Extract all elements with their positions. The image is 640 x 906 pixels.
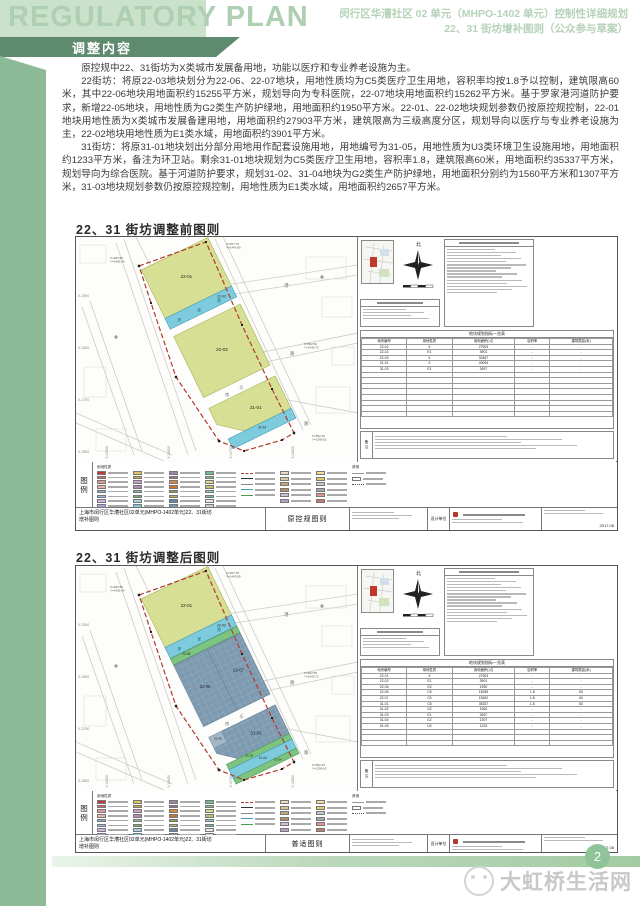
legend-swatch xyxy=(205,476,214,480)
grid-label: X-2800 xyxy=(78,450,89,454)
parcel-label-31-03: 31-03 xyxy=(259,756,267,760)
legend-swatch xyxy=(280,499,289,503)
legend-swatch xyxy=(133,828,142,832)
river-name-char: 罗 xyxy=(177,317,181,322)
coordinate-callout: Y=1445.72 xyxy=(304,346,319,350)
location-inset-map xyxy=(361,240,394,284)
legend-swatch xyxy=(97,471,106,475)
grid-label: Y-14500 xyxy=(105,775,109,788)
road-name-char: 港 xyxy=(284,611,289,618)
legend-swatch xyxy=(97,480,106,484)
legend-swatch xyxy=(133,490,142,494)
after-map-title: 22、31 街坊调整后图则 xyxy=(76,547,220,566)
legend-label: 图例 xyxy=(76,791,93,834)
river-name-char: 港 xyxy=(217,626,221,632)
legend-swatch xyxy=(169,504,178,508)
legend-swatch xyxy=(316,806,325,810)
legend-swatch xyxy=(97,828,106,832)
river-name-char: 罗 xyxy=(177,646,181,651)
legend-swatch xyxy=(316,817,325,821)
legend-swatch xyxy=(97,504,106,508)
watermark-logo-icon xyxy=(464,866,494,896)
legend-column xyxy=(316,794,347,832)
design-unit-label: 设计单位 xyxy=(428,835,450,852)
coordinate-callout: Y=1462.64 xyxy=(110,260,125,264)
grid-label: Y-14600 xyxy=(167,446,171,459)
titlebar-sheet-name: 普适图则 xyxy=(266,835,350,852)
legend-swatch xyxy=(133,485,142,489)
inset-highlight-parcel xyxy=(370,257,377,267)
legend-swatch xyxy=(280,477,289,481)
legend-swatch xyxy=(205,828,214,832)
titlebar-notes xyxy=(350,835,428,852)
road-name-char: 路 xyxy=(290,350,295,357)
legend-swatch xyxy=(280,828,289,832)
paragraph-intro: 原控规中22、31街坊为X类城市发展备用地，功能以医疗和专业养老设施为主。 xyxy=(62,62,619,75)
grid-label: Y-14500 xyxy=(105,446,109,459)
map-info-panel: 北 地块规划指标一览表 地块编号用地性质用地面积(㎡)容积率建筑限高(米) 22… xyxy=(357,237,616,462)
legend-swatch xyxy=(169,495,178,499)
legend-swatch xyxy=(97,476,106,480)
legend-swatch xyxy=(133,499,142,503)
grid-label: X-2600 xyxy=(78,346,89,350)
inset-highlight-parcel xyxy=(370,586,377,596)
parcel-label-31-05: 31-05 xyxy=(214,737,222,741)
location-inset-map xyxy=(361,569,394,613)
grid-label: Y-14600 xyxy=(167,775,171,788)
legend-swatch xyxy=(97,495,106,499)
legend-swatch xyxy=(133,809,142,813)
legend-swatch xyxy=(97,814,106,818)
legend-swatch xyxy=(205,480,214,484)
parcel-label-22-06: 22-06 xyxy=(200,684,211,689)
coordinate-callout: Y=1396.62 xyxy=(312,438,327,442)
plan-heading: 闵行区华漕社区 02 单元（MHPO-1402 单元）控制性详细规划 22、31… xyxy=(339,7,628,37)
plan-map-drawing: 22-0122-0222-0331-0131-03罗家港南乐港路路X=263.5… xyxy=(76,237,357,462)
legend-swatch xyxy=(133,504,142,508)
plan-map-drawing: 22-0122-0222-0522-0622-0731-0131-0531-02… xyxy=(76,566,357,791)
left-accent-bar xyxy=(0,56,46,906)
paragraph-block22: 22街坊：将原22-03地块划分为22-06、22-07地块，用地性质均为C5类… xyxy=(62,75,619,141)
legend-swatch xyxy=(316,499,325,503)
parcel-label-31-04: 31-04 xyxy=(274,757,282,761)
legend-swatch xyxy=(316,800,325,804)
map-legend: 图例 用地性质 其他 xyxy=(76,462,617,508)
parcel-label-22-01: 22-01 xyxy=(181,274,193,279)
legend-swatch xyxy=(205,495,214,499)
map-row: 22-0122-0222-0331-0131-03罗家港南乐港路路X=263.5… xyxy=(76,237,617,462)
map-info-panel: 北 地块规划指标一览表 地块编号用地性质用地面积(㎡)容积率建筑限高(米) 22… xyxy=(357,566,616,791)
legend-swatch xyxy=(97,490,106,494)
legend-swatch xyxy=(97,485,106,489)
figure-title-bar: 上海市闵行区华漕社区02单元(MHPO-1402单元)22、31街坊 增补图则 … xyxy=(76,835,617,852)
map-row: 22-0122-0222-0522-0622-0731-0131-0531-02… xyxy=(76,566,617,791)
legend-swatch xyxy=(316,828,325,832)
titlebar-project: 上海市闵行区华漕社区02单元(MHPO-1402单元)22、31街坊 增补图则 xyxy=(76,508,266,530)
legend-column-lines xyxy=(241,465,275,505)
legend-swatch xyxy=(205,800,214,804)
legend-column xyxy=(133,794,164,832)
river-name-char: 港 xyxy=(217,297,221,303)
legend-swatch xyxy=(316,488,325,492)
legend-swatch xyxy=(316,482,325,486)
legend-swatch xyxy=(169,490,178,494)
legend-label: 图例 xyxy=(76,462,93,507)
road-name-char: 乐 xyxy=(239,713,243,719)
road-name-char: 路 xyxy=(304,749,309,756)
legend-swatch xyxy=(205,814,214,818)
legend-swatch xyxy=(280,822,289,826)
map-before-figure: 22-0122-0222-0331-0131-03罗家港南乐港路路X=263.5… xyxy=(75,236,618,531)
panel-indicator-table xyxy=(444,239,534,327)
legend-column: 用地性质 xyxy=(97,465,128,505)
titlebar-project: 上海市闵行区华漕社区02单元(MHPO-1402单元)22、31街坊 增补图则 xyxy=(76,835,266,852)
parcel-label-31-03: 31-03 xyxy=(258,426,266,430)
road-name-char: 南 xyxy=(225,720,229,726)
legend-swatch xyxy=(169,800,178,804)
legend-swatch xyxy=(169,499,178,503)
legend-swatch xyxy=(205,809,214,813)
parcel-index-table: 地块规划指标一览表 地块编号用地性质用地面积(㎡)容积率建筑限高(米) 22-0… xyxy=(360,659,614,758)
legend-swatch xyxy=(169,819,178,823)
legend-swatch xyxy=(169,805,178,809)
figure-title-bar: 上海市闵行区华漕社区02单元(MHPO-1402单元)22、31街坊 增补图则 … xyxy=(76,508,617,530)
legend-swatch xyxy=(316,471,325,475)
legend-swatch xyxy=(169,476,178,480)
north-compass: 北 xyxy=(398,568,438,626)
north-label: 北 xyxy=(416,570,421,577)
legend-column xyxy=(133,465,164,505)
grid-label: X-2500 xyxy=(78,294,89,298)
road-name-char: 港 xyxy=(284,282,289,289)
design-unit-name xyxy=(450,835,542,852)
legend-swatch xyxy=(169,809,178,813)
titlebar-notes xyxy=(350,508,428,530)
legend-column xyxy=(280,794,311,832)
legend-column xyxy=(316,465,347,505)
legend-swatch xyxy=(97,819,106,823)
coordinate-callout: Y=1443.89 xyxy=(226,246,241,250)
parcel-index-table-grid: 地块编号用地性质用地面积(㎡)容积率建筑限高(米) 22-01X27903--2… xyxy=(361,667,613,746)
notes-box: 备注 xyxy=(360,760,614,788)
legend-swatch xyxy=(205,504,214,508)
map-after-figure: 22-0122-0222-0522-0622-0731-0131-0531-02… xyxy=(75,565,618,853)
grid-label: Y-14700 xyxy=(229,446,233,459)
road-name-char: 乐 xyxy=(239,384,243,390)
legend-column-other: 其他 xyxy=(352,465,386,505)
watermark: 大虹桥生活网 xyxy=(464,866,632,896)
grid-label: X-2600 xyxy=(78,675,89,679)
legend-swatch xyxy=(280,806,289,810)
paragraph-block31: 31街坊：将原31-01地块划出分部分用地用作配套设施用地，用地编号为31-05… xyxy=(62,141,619,194)
titlebar-sheet-name: 原控规图则 xyxy=(266,508,350,530)
legend-swatch xyxy=(280,471,289,475)
road-name-char: 路 xyxy=(290,679,295,686)
legend-swatch xyxy=(316,477,325,481)
legend-swatch xyxy=(133,800,142,804)
legend-swatch xyxy=(280,488,289,492)
legend-swatch xyxy=(133,805,142,809)
river-name-char: 家 xyxy=(197,636,201,642)
map-legend: 图例 用地性质 其他 xyxy=(76,791,617,835)
grid-label: X-2500 xyxy=(78,623,89,627)
parcel-label-22-01: 22-01 xyxy=(181,603,193,608)
legend-swatch xyxy=(133,480,142,484)
legend-swatch xyxy=(169,824,178,828)
legend-swatch xyxy=(205,490,214,494)
north-label: 北 xyxy=(416,241,421,248)
legend-swatch xyxy=(169,828,178,832)
notes-label: 备注 xyxy=(361,432,373,458)
parcel-label-22-07: 22-07 xyxy=(233,668,244,673)
legend-swatch xyxy=(280,811,289,815)
legend-column xyxy=(280,465,311,505)
design-unit-logo-icon xyxy=(453,512,458,517)
legend-swatch xyxy=(133,471,142,475)
section-banner: 调整内容 xyxy=(0,37,240,57)
plan-heading-line1: 闵行区华漕社区 02 单元（MHPO-1402 单元）控制性详细规划 xyxy=(339,7,628,22)
sheet-date: 2017.08 xyxy=(600,523,614,528)
page: { "header": { "title": "REGULATORY PLAN"… xyxy=(0,0,640,906)
page-title: REGULATORY PLAN xyxy=(8,1,309,34)
legend-column-other: 其他 xyxy=(352,794,386,832)
adjustment-text: 原控规中22、31街坊为X类城市发展备用地，功能以医疗和专业养老设施为主。 22… xyxy=(62,62,619,194)
legend-swatch xyxy=(280,817,289,821)
legend-swatch xyxy=(280,482,289,486)
parcel-index-table-title: 地块规划指标一览表 xyxy=(361,660,613,667)
parcel-index-table-title: 地块规划指标一览表 xyxy=(361,331,613,338)
legend-swatch xyxy=(133,824,142,828)
legend-swatch xyxy=(133,819,142,823)
grid-label: X-2700 xyxy=(78,398,89,402)
coordinate-callout: Y=1445.72 xyxy=(304,675,319,679)
titlebar-signoff: 2017.08 xyxy=(542,508,617,530)
legend-swatch xyxy=(133,495,142,499)
legend-swatch xyxy=(169,471,178,475)
parcel-label-31-01: 31-01 xyxy=(250,405,262,410)
river-name-char: 家 xyxy=(197,307,201,313)
design-unit-name xyxy=(450,508,542,530)
legend-swatch xyxy=(169,480,178,484)
grid-label: Y-14700 xyxy=(229,775,233,788)
parcel-label-22-03: 22-03 xyxy=(216,347,228,352)
parcel-group: 22-0122-0222-0522-0622-0731-0131-0531-02… xyxy=(141,567,299,786)
grid-label: X-2700 xyxy=(78,727,89,731)
parcel-label-22-05: 22-05 xyxy=(182,652,190,656)
section-banner-label: 调整内容 xyxy=(72,38,132,57)
watermark-text: 大虹桥生活网 xyxy=(500,866,632,896)
legend-swatch xyxy=(97,809,106,813)
legend-swatch xyxy=(205,485,214,489)
legend-swatch xyxy=(133,476,142,480)
legend-column xyxy=(205,465,236,505)
road-name-char: 南 xyxy=(225,391,229,397)
project-name-line1: 上海市闵行区华漕社区02单元(MHPO-1402单元)22、31街坊 xyxy=(76,835,265,844)
coordinate-callout: Y=1396.62 xyxy=(312,767,327,771)
legend-swatch xyxy=(205,471,214,475)
legend-swatch xyxy=(205,824,214,828)
panel-indicator-table xyxy=(444,568,534,656)
legend-swatch xyxy=(205,805,214,809)
parcel-index-table: 地块规划指标一览表 地块编号用地性质用地面积(㎡)容积率建筑限高(米) 22-0… xyxy=(360,330,614,429)
legend-swatch xyxy=(316,822,325,826)
legend-swatch xyxy=(205,499,214,503)
legend-swatch xyxy=(205,819,214,823)
legend-swatch xyxy=(316,811,325,815)
legend-column xyxy=(169,465,200,505)
legend-swatch xyxy=(316,493,325,497)
coordinate-callout: Y=1462.64 xyxy=(110,589,125,593)
legend-swatch xyxy=(97,824,106,828)
legend-column: 用地性质 xyxy=(97,794,128,832)
project-name-line2: 增补图则 xyxy=(76,844,265,851)
legend-swatch xyxy=(169,485,178,489)
legend-swatch xyxy=(97,499,106,503)
legend-column xyxy=(169,794,200,832)
parcel-label-31-01: 31-01 xyxy=(250,730,262,735)
north-compass: 北 xyxy=(398,239,438,297)
parcel-index-table-grid: 地块编号用地性质用地面积(㎡)容积率建筑限高(米) 22-01X27903--2… xyxy=(361,338,613,417)
panel-compare-table-small xyxy=(360,628,440,656)
project-name-line1: 上海市闵行区华漕社区02单元(MHPO-1402单元)22、31街坊 xyxy=(76,508,265,517)
legend-swatch xyxy=(97,805,106,809)
panel-compare-table-small xyxy=(360,299,440,327)
coordinate-callout: Y=1443.89 xyxy=(226,575,241,579)
legend-swatch xyxy=(280,800,289,804)
legend-swatch xyxy=(133,814,142,818)
legend-column-lines xyxy=(241,794,275,832)
grid-label: Y-14800 xyxy=(291,446,295,459)
grid-label: Y-14800 xyxy=(291,775,295,788)
project-name-line2: 增补图则 xyxy=(76,517,265,524)
design-unit-logo-icon xyxy=(453,839,458,844)
plan-heading-line2: 22、31 街坊增补图则（公众参与草案） xyxy=(339,22,628,37)
legend-swatch xyxy=(280,493,289,497)
parcel-label-31-02: 31-02 xyxy=(245,754,253,758)
legend-swatch xyxy=(169,814,178,818)
legend-swatch xyxy=(97,800,106,804)
notes-label: 备注 xyxy=(361,761,373,787)
design-unit-label: 设计单位 xyxy=(428,508,450,530)
legend-column xyxy=(205,794,236,832)
notes-box: 备注 xyxy=(360,431,614,459)
grid-label: X-2800 xyxy=(78,779,89,783)
road-name-char: 路 xyxy=(304,420,309,427)
